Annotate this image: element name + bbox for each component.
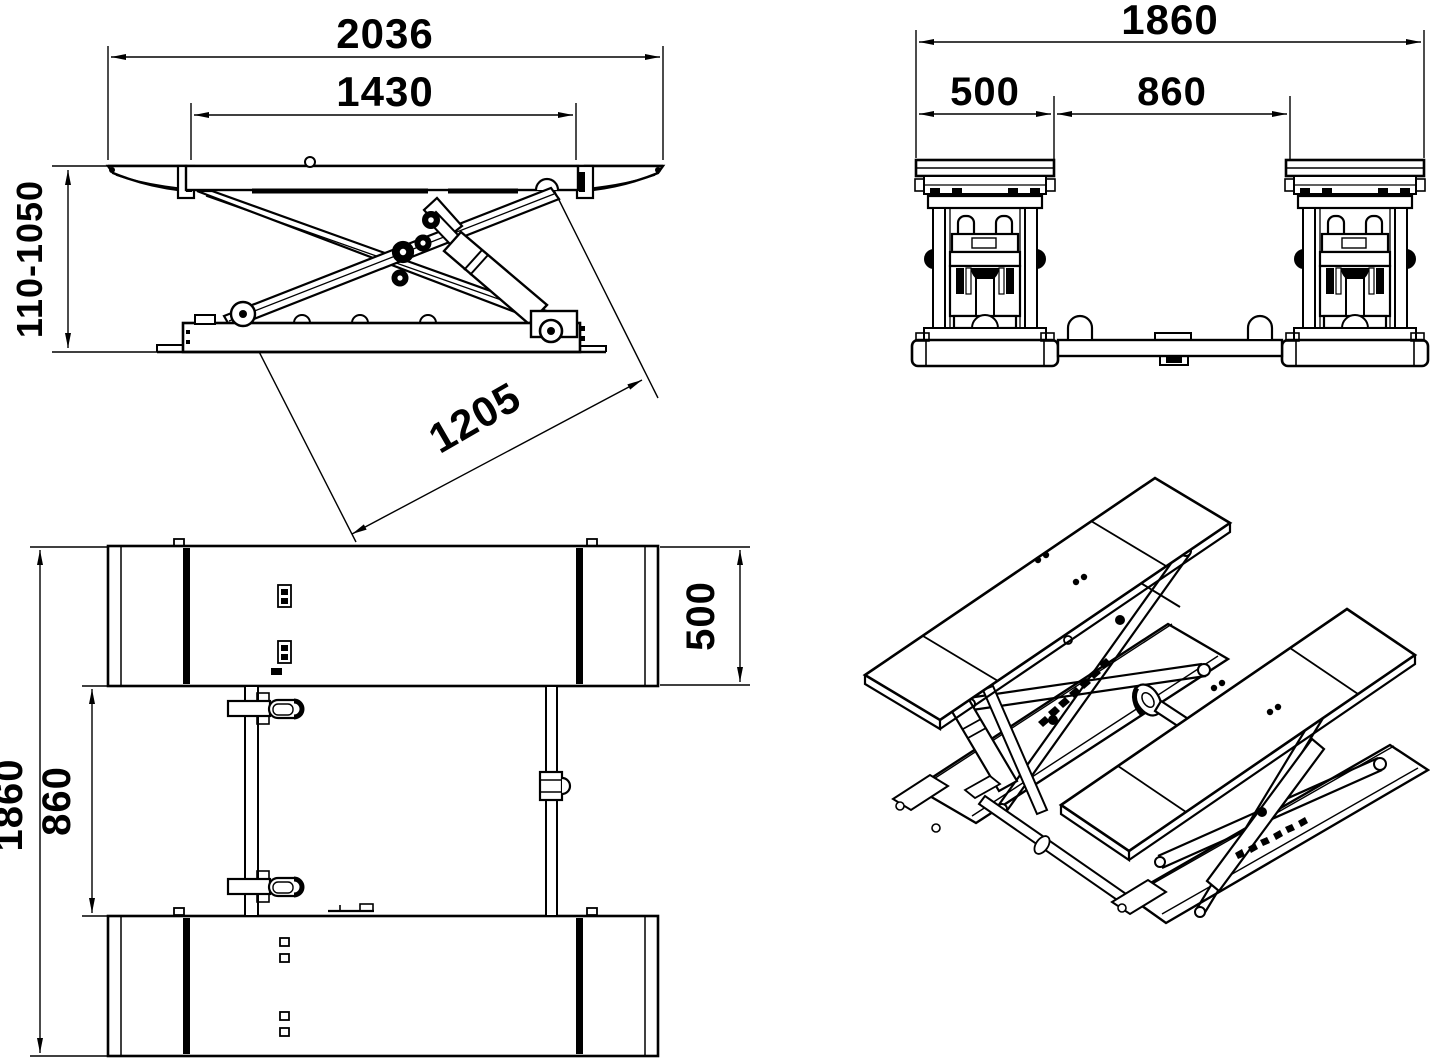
side-elevation-view: 2036 1430 110-1050 1205: [9, 10, 663, 542]
front-elevation-view: 1860 500 860: [912, 0, 1428, 366]
dim-label-front-platform-width: 500: [950, 70, 1020, 114]
isometric-view: [865, 478, 1428, 923]
side-platform: [108, 157, 663, 198]
dim-label-side-overall-length: 2036: [336, 10, 433, 57]
dim-label-plan-platform-width: 500: [679, 581, 723, 651]
dim-label-side-height-range: 110-1050: [9, 180, 50, 338]
plan-left-tie-rod: [228, 686, 303, 916]
plan-right-tie-rod: [540, 686, 570, 916]
dim-plan-inner-track: [82, 686, 110, 916]
dim-label-side-platform-length: 1430: [336, 68, 433, 115]
dim-label-plan-inner-track: 860: [35, 766, 79, 836]
front-connecting-bar: [1058, 316, 1282, 365]
dim-label-front-inner-track: 860: [1137, 70, 1207, 114]
plan-bottom-platform: [108, 908, 658, 1056]
drawing-sheet: 2036 1430 110-1050 1205: [0, 0, 1430, 1064]
dim-label-plan-overall-width: 1860: [0, 759, 31, 852]
dim-side-height-range: [52, 166, 162, 352]
front-right-unit: [1282, 160, 1428, 366]
plan-latch-detail: [328, 904, 374, 911]
plan-top-platform: [108, 539, 658, 686]
dim-label-front-overall-width: 1860: [1121, 0, 1218, 43]
plan-view: 1860 860 500: [0, 539, 750, 1056]
drawing-canvas: 2036 1430 110-1050 1205: [0, 0, 1430, 1064]
front-left-unit: [912, 160, 1058, 366]
